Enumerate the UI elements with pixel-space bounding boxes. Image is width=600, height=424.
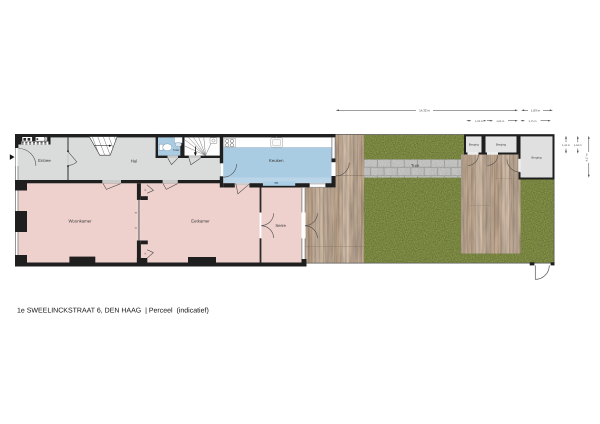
svg-text:Tuin: Tuin xyxy=(411,163,420,168)
svg-text:1,02 m: 1,02 m xyxy=(475,120,483,123)
svg-text:K: K xyxy=(145,252,147,255)
svg-text:Toilet: Toilet xyxy=(173,149,180,152)
svg-text:Woonkamer: Woonkamer xyxy=(68,218,92,223)
svg-text:Entree: Entree xyxy=(38,158,51,163)
svg-text:Berging: Berging xyxy=(469,143,479,147)
svg-text:1,75 m: 1,75 m xyxy=(529,120,537,123)
svg-text:1,66 m: 1,66 m xyxy=(496,120,504,123)
svg-text:1,63 m: 1,63 m xyxy=(574,144,582,147)
svg-text:Serre: Serre xyxy=(275,223,286,228)
svg-text:Berging: Berging xyxy=(532,156,542,160)
svg-text:4,17 m: 4,17 m xyxy=(586,154,589,162)
svg-text:Berging: Berging xyxy=(496,143,506,147)
svg-text:Hal: Hal xyxy=(131,158,137,163)
svg-text:1,22 m: 1,22 m xyxy=(562,144,570,147)
svg-text:Keuken: Keuken xyxy=(269,158,284,163)
svg-text:14,32 m: 14,32 m xyxy=(419,109,430,113)
svg-text:1e SWEELINCKSTRAAT 6, DEN HAAG: 1e SWEELINCKSTRAAT 6, DEN HAAG | Perceel… xyxy=(17,307,209,315)
svg-text:Eetkamer: Eetkamer xyxy=(191,218,210,223)
svg-text:1,69 m: 1,69 m xyxy=(531,109,541,113)
svg-text:K: K xyxy=(145,189,147,192)
